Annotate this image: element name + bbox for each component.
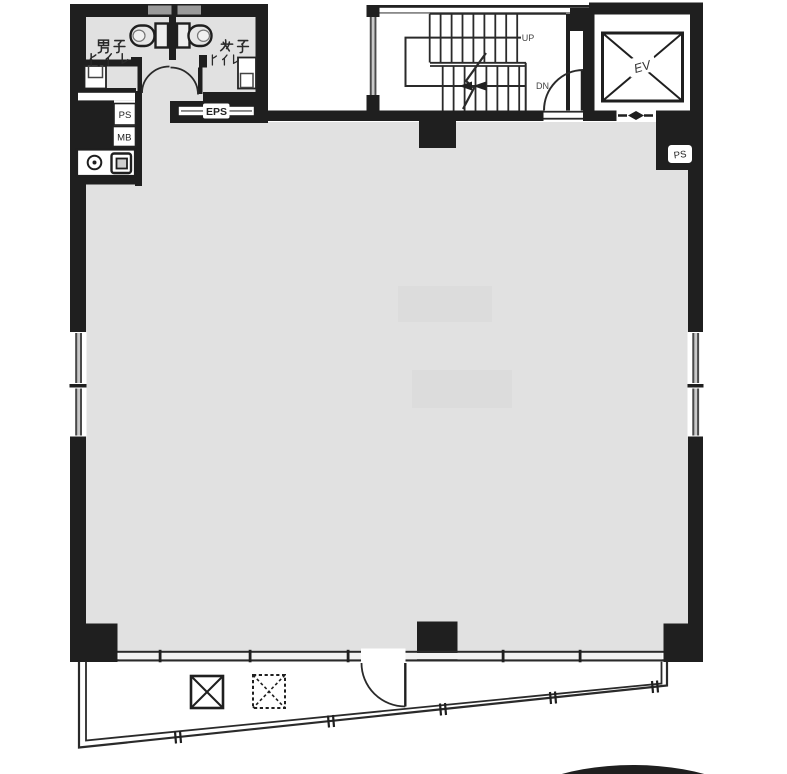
svg-text:DN: DN (536, 81, 549, 91)
svg-text:PS: PS (119, 110, 132, 121)
svg-text:MB: MB (117, 132, 131, 143)
svg-text:EPS: EPS (206, 106, 227, 118)
svg-text:UP: UP (522, 33, 535, 43)
svg-text:PS: PS (673, 149, 687, 161)
